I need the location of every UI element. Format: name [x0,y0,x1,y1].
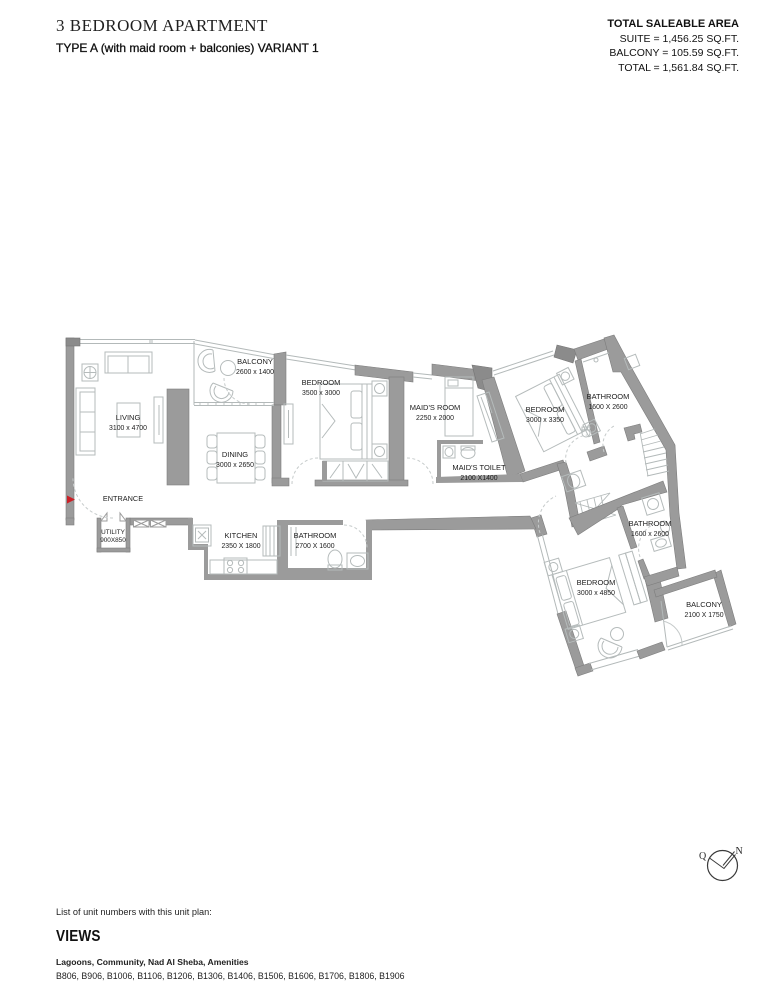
svg-text:3000 x 2650: 3000 x 2650 [216,462,254,469]
svg-text:DINING: DINING [222,450,248,459]
svg-text:BEDROOM: BEDROOM [526,405,565,414]
svg-text:BATHROOM: BATHROOM [629,519,672,528]
svg-text:1600 X 2600: 1600 X 2600 [588,404,627,411]
svg-text:900X850: 900X850 [100,537,126,544]
svg-text:MAID'S TOILET: MAID'S TOILET [452,463,506,472]
svg-text:2350 X 1800: 2350 X 1800 [221,543,260,550]
svg-text:BATHROOM: BATHROOM [294,531,337,540]
svg-text:3000 x 3350: 3000 x 3350 [526,417,564,424]
svg-text:BEDROOM: BEDROOM [302,378,341,387]
svg-text:2600 x 1400: 2600 x 1400 [236,369,274,376]
svg-text:BALCONY: BALCONY [686,600,722,609]
svg-text:BEDROOM: BEDROOM [577,578,616,587]
svg-text:MAID'S ROOM: MAID'S ROOM [410,403,461,412]
svg-text:N: N [736,846,743,857]
svg-text:3000 x 4850: 3000 x 4850 [577,590,615,597]
svg-text:BALCONY: BALCONY [237,357,273,366]
svg-text:Q: Q [699,851,707,862]
svg-text:LIVING: LIVING [116,413,141,422]
svg-text:BATHROOM: BATHROOM [587,392,630,401]
svg-text:3500 x 3000: 3500 x 3000 [302,390,340,397]
svg-text:1600 x 2600: 1600 x 2600 [631,531,669,538]
svg-text:UTILITY: UTILITY [101,529,126,536]
svg-text:ENTRANCE: ENTRANCE [103,494,143,503]
svg-text:3100 x 4700: 3100 x 4700 [109,425,147,432]
svg-text:2250 x 2000: 2250 x 2000 [416,415,454,422]
svg-text:2100 X1400: 2100 X1400 [460,475,497,482]
svg-text:2100 X 1750: 2100 X 1750 [684,612,723,619]
svg-text:KITCHEN: KITCHEN [225,531,258,540]
svg-text:2700 X 1600: 2700 X 1600 [295,543,334,550]
